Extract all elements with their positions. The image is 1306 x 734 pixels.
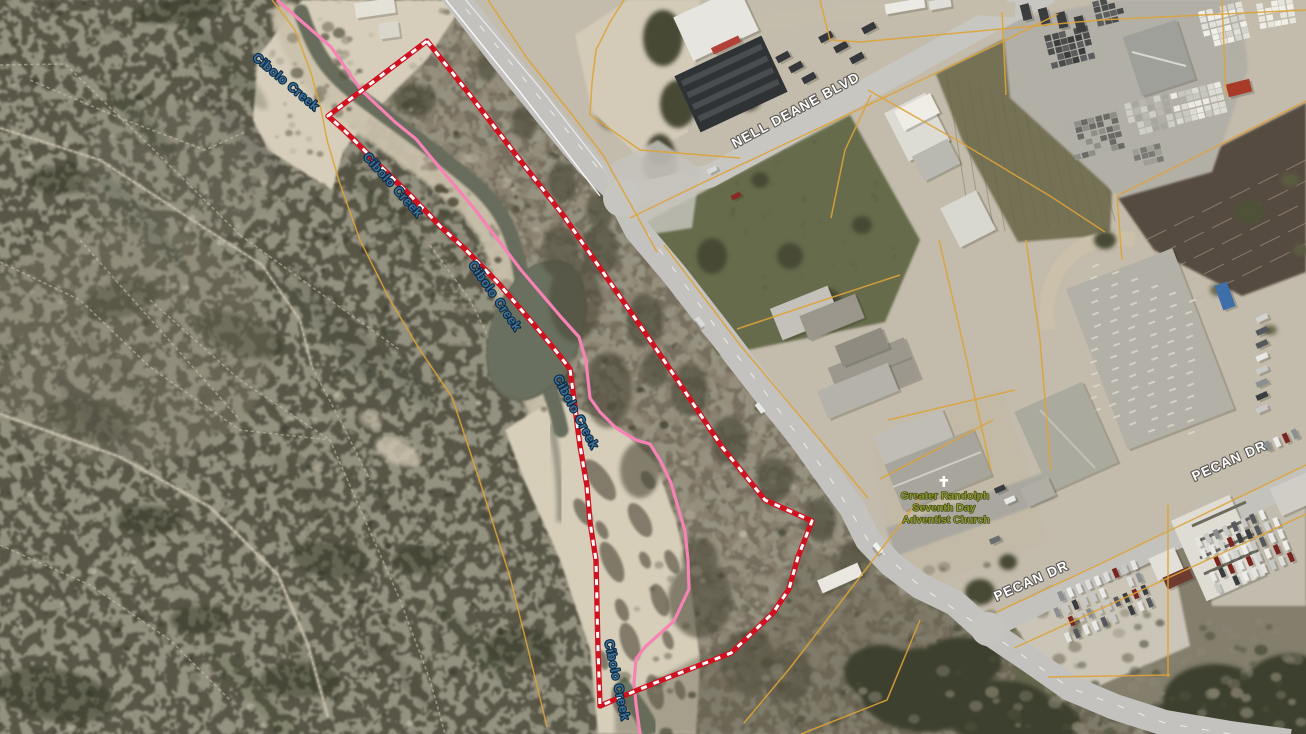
svg-text:Greater Randolph: Greater Randolph xyxy=(901,490,990,502)
svg-text:Seventh Day: Seventh Day xyxy=(912,502,975,514)
svg-text:Adventist Church: Adventist Church xyxy=(902,514,990,526)
